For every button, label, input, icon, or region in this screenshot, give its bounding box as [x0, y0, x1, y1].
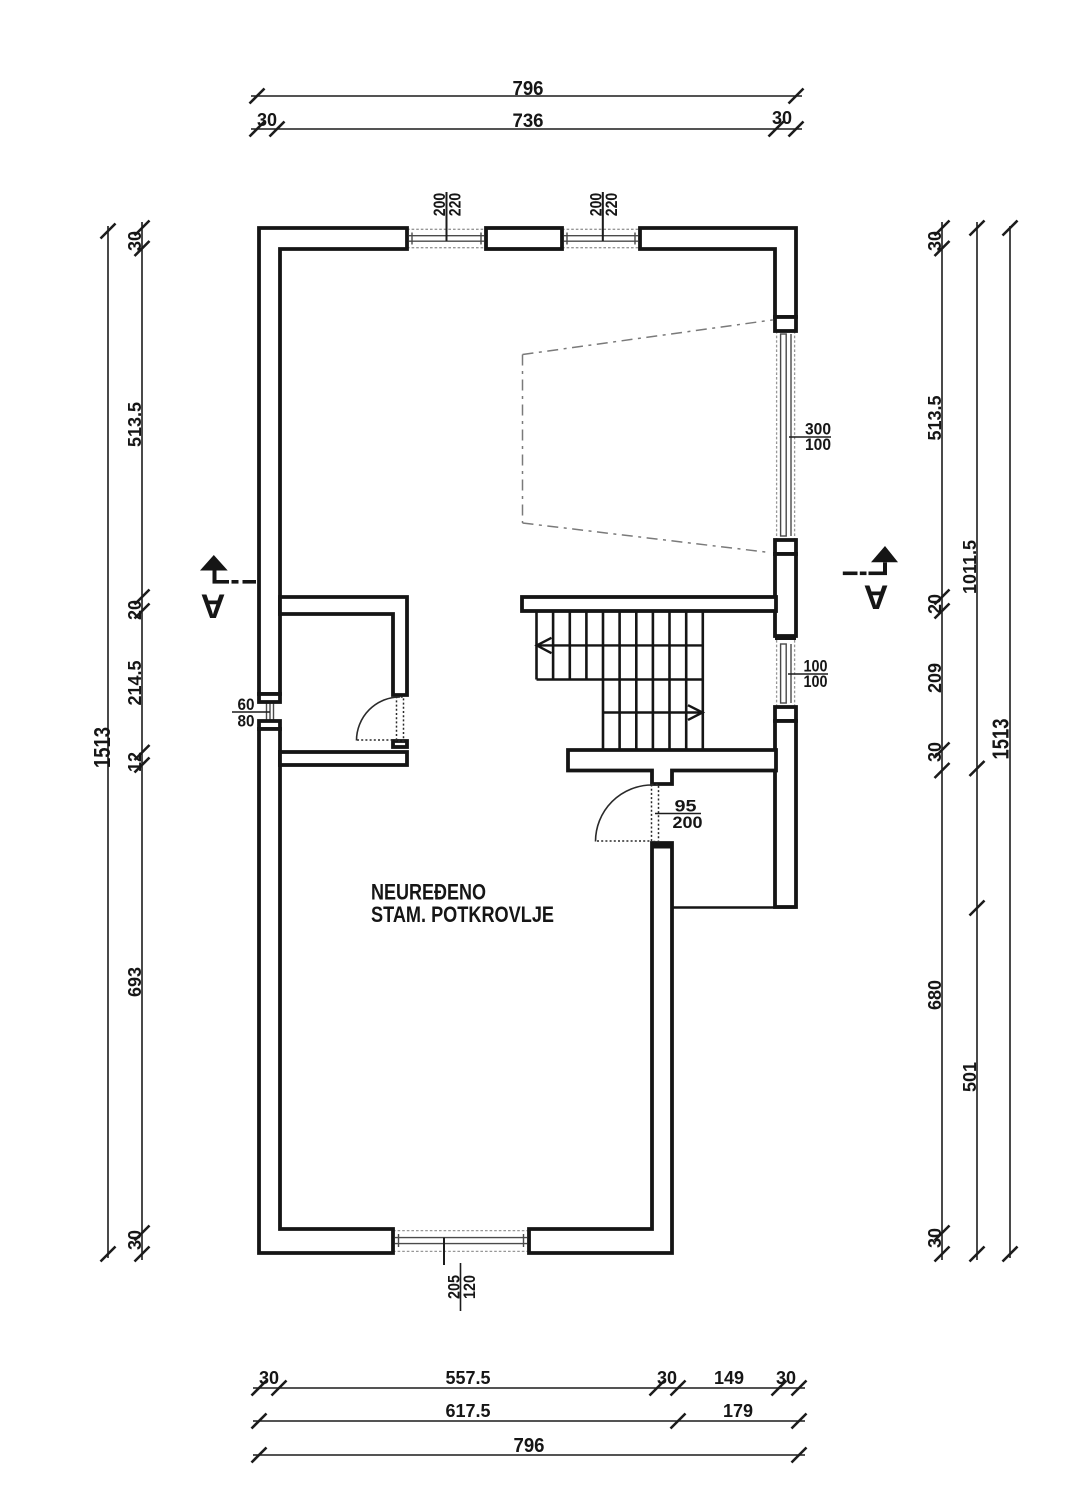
svg-text:20: 20 [925, 594, 945, 614]
svg-text:693: 693 [125, 967, 145, 997]
svg-text:501: 501 [960, 1062, 980, 1092]
svg-text:513.5: 513.5 [125, 402, 145, 447]
svg-text:200: 200 [673, 813, 703, 832]
svg-text:796: 796 [513, 78, 544, 100]
svg-text:A: A [864, 578, 889, 616]
svg-text:736: 736 [513, 111, 544, 132]
svg-text:30: 30 [259, 1368, 279, 1388]
svg-text:513.5: 513.5 [925, 395, 945, 440]
svg-text:220: 220 [446, 193, 465, 217]
svg-text:796: 796 [514, 1435, 545, 1457]
svg-text:120: 120 [460, 1275, 479, 1299]
svg-text:30: 30 [925, 742, 945, 762]
svg-text:100: 100 [804, 672, 828, 691]
svg-text:20: 20 [125, 600, 145, 620]
svg-text:209: 209 [925, 663, 945, 693]
svg-text:214.5: 214.5 [125, 660, 145, 705]
svg-text:30: 30 [925, 231, 945, 251]
svg-text:30: 30 [925, 1228, 945, 1248]
svg-text:A: A [201, 587, 226, 625]
svg-text:220: 220 [602, 193, 621, 217]
svg-text:1011.5: 1011.5 [960, 540, 980, 594]
svg-text:80: 80 [238, 712, 255, 731]
svg-text:617.5: 617.5 [445, 1401, 490, 1421]
svg-text:30: 30 [772, 108, 792, 128]
svg-text:30: 30 [776, 1368, 796, 1388]
svg-text:30: 30 [657, 1368, 677, 1388]
svg-text:1513: 1513 [988, 719, 1014, 760]
svg-text:149: 149 [714, 1368, 744, 1388]
svg-text:179: 179 [723, 1401, 753, 1421]
svg-text:100: 100 [805, 435, 831, 454]
svg-text:NEUREĐENO: NEUREĐENO [371, 880, 486, 905]
svg-text:1513: 1513 [89, 727, 115, 768]
svg-text:557.5: 557.5 [445, 1368, 490, 1388]
svg-text:30: 30 [125, 1230, 145, 1250]
svg-text:30: 30 [257, 110, 277, 130]
svg-text:680: 680 [925, 980, 945, 1010]
svg-text:12: 12 [125, 752, 145, 772]
svg-text:30: 30 [125, 231, 145, 251]
svg-text:STAM. POTKROVLJE: STAM. POTKROVLJE [371, 902, 554, 927]
